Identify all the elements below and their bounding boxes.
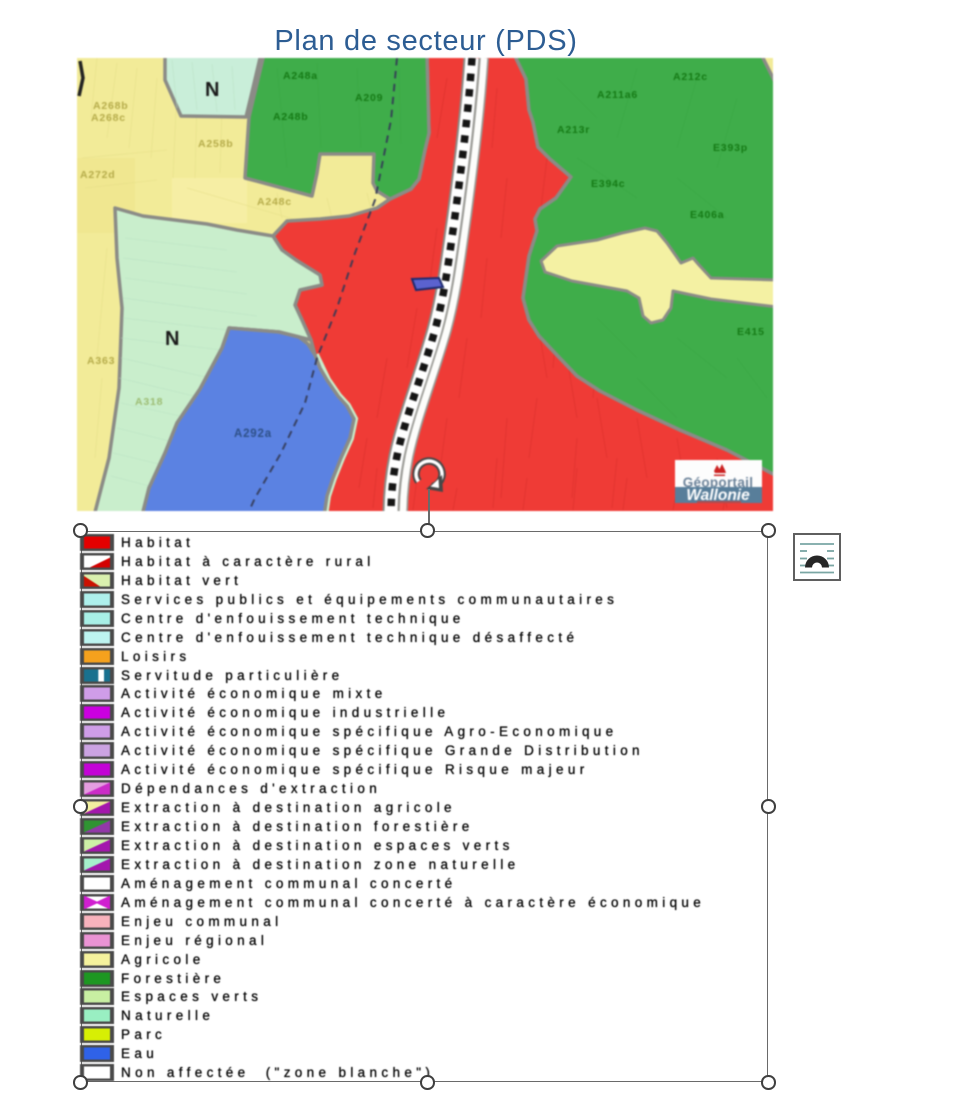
svg-text:E406a: E406a [690, 209, 724, 221]
svg-text:A292a: A292a [234, 428, 272, 440]
svg-text:A213r: A213r [557, 124, 590, 136]
svg-text:N: N [205, 79, 220, 101]
svg-text:A268b: A268b [93, 100, 129, 112]
svg-text:A248a: A248a [283, 70, 318, 82]
svg-text:E415: E415 [737, 326, 765, 338]
svg-text:A258b: A258b [198, 138, 234, 150]
svg-text:A212c: A212c [673, 71, 708, 83]
svg-text:A248c: A248c [257, 196, 292, 208]
svg-text:A318: A318 [135, 396, 163, 408]
svg-text:A248b: A248b [273, 111, 309, 123]
svg-text:A211a6: A211a6 [597, 89, 638, 101]
svg-text:A268c: A268c [91, 112, 126, 124]
svg-text:E393p: E393p [713, 142, 748, 154]
svg-text:E394c: E394c [591, 178, 625, 190]
svg-text:A272d: A272d [80, 169, 116, 181]
svg-text:N: N [165, 328, 180, 350]
svg-text:A209: A209 [355, 92, 383, 104]
svg-text:A363: A363 [87, 355, 115, 367]
